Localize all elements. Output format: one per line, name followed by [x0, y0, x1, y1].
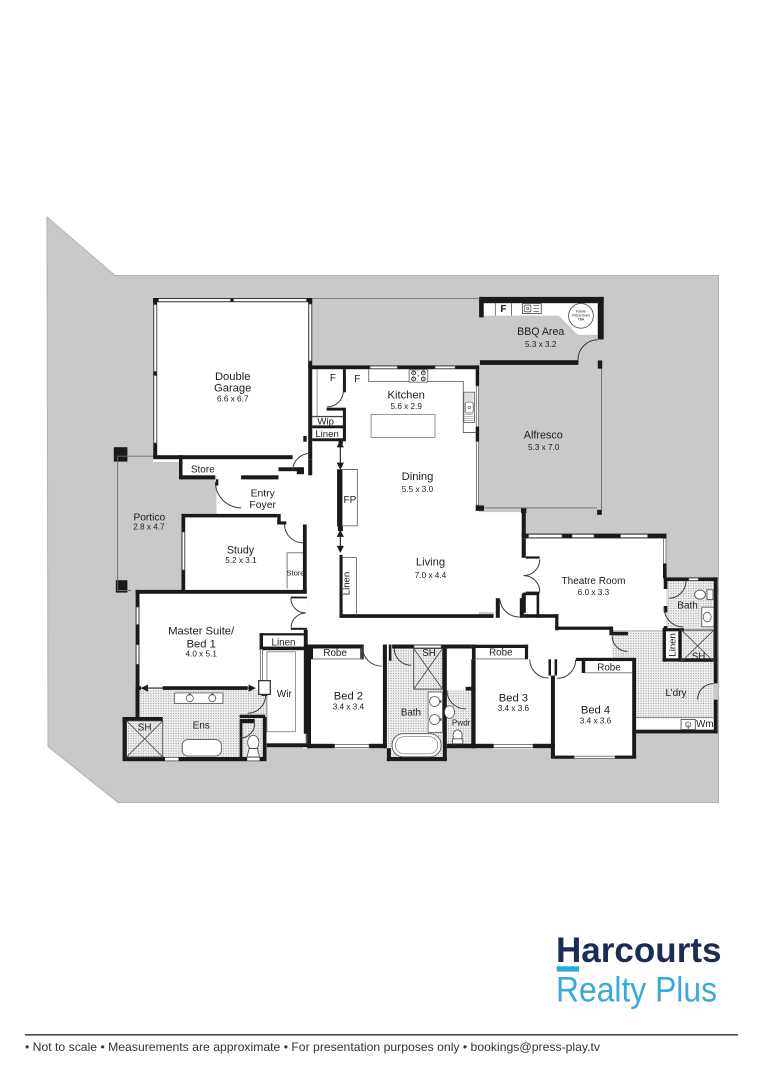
- svg-text:4.0 x 5.1: 4.0 x 5.1: [185, 650, 217, 659]
- svg-text:Bed 2: Bed 2: [334, 691, 363, 703]
- svg-text:SH: SH: [422, 648, 436, 659]
- svg-text:Entry: Entry: [251, 489, 276, 500]
- svg-text:Dining: Dining: [402, 471, 434, 483]
- svg-text:Linen: Linen: [315, 429, 338, 440]
- svg-text:BBQ Area: BBQ Area: [517, 326, 564, 338]
- svg-text:Theatre Room: Theatre Room: [562, 576, 626, 587]
- svg-text:Alfresco: Alfresco: [524, 429, 563, 441]
- svg-text:SH: SH: [692, 651, 706, 662]
- svg-text:F: F: [330, 373, 336, 384]
- svg-text:5.3 x 7.0: 5.3 x 7.0: [528, 443, 560, 452]
- svg-text:Realty Plus: Realty Plus: [556, 971, 717, 1010]
- svg-text:Robe: Robe: [323, 648, 347, 659]
- svg-text:5.3 x 3.2: 5.3 x 3.2: [525, 340, 557, 349]
- svg-text:3.4 x 3.6: 3.4 x 3.6: [498, 704, 530, 713]
- svg-text:FP: FP: [344, 495, 357, 506]
- svg-text:Pwdr: Pwdr: [452, 718, 471, 727]
- svg-text:3.4 x 3.6: 3.4 x 3.6: [580, 717, 612, 726]
- svg-text:Living: Living: [416, 557, 445, 569]
- svg-text:SH: SH: [138, 723, 152, 734]
- svg-text:5.6 x 2.9: 5.6 x 2.9: [390, 402, 422, 411]
- svg-text:Bed 4: Bed 4: [581, 704, 610, 716]
- svg-text:Harcourts: Harcourts: [556, 930, 722, 970]
- svg-text:Robe: Robe: [489, 648, 513, 659]
- svg-text:Store: Store: [191, 464, 215, 475]
- svg-text:3.4 x 3.4: 3.4 x 3.4: [333, 702, 365, 711]
- svg-text:Store: Store: [287, 568, 305, 577]
- svg-text:F: F: [354, 374, 360, 385]
- svg-text:• Not to scale • Measurements: • Not to scale • Measurements are approx…: [25, 1040, 600, 1054]
- svg-text:Wir: Wir: [277, 689, 293, 700]
- svg-text:Wm: Wm: [696, 719, 713, 730]
- svg-text:Bed 1: Bed 1: [187, 639, 216, 651]
- svg-text:5.5 x 3.0: 5.5 x 3.0: [402, 485, 434, 494]
- svg-text:Bath: Bath: [401, 708, 421, 719]
- svg-text:Ens: Ens: [193, 721, 210, 732]
- svg-text:Garage: Garage: [214, 383, 251, 395]
- svg-text:5.2 x 3.1: 5.2 x 3.1: [225, 556, 257, 565]
- svg-text:6.6 x 6.7: 6.6 x 6.7: [217, 395, 249, 404]
- svg-text:Linen: Linen: [667, 633, 678, 656]
- svg-text:6.0 x 3.3: 6.0 x 3.3: [578, 588, 610, 597]
- svg-text:Bath: Bath: [677, 601, 698, 612]
- svg-text:TBA: TBA: [578, 317, 585, 321]
- svg-text:Kitchen: Kitchen: [388, 389, 425, 401]
- svg-text:Master Suite/: Master Suite/: [168, 625, 235, 637]
- svg-text:Study: Study: [227, 545, 255, 557]
- svg-text:F: F: [500, 304, 506, 315]
- svg-text:Foyer: Foyer: [249, 500, 276, 511]
- svg-text:L’dry: L’dry: [665, 688, 686, 699]
- svg-text:7.0 x 4.4: 7.0 x 4.4: [415, 571, 447, 580]
- svg-text:Wip: Wip: [317, 417, 334, 428]
- svg-text:2.8 x 4.7: 2.8 x 4.7: [133, 523, 165, 532]
- svg-text:Linen: Linen: [272, 638, 296, 649]
- svg-text:Double: Double: [215, 371, 250, 383]
- svg-text:Robe: Robe: [597, 663, 621, 674]
- svg-text:Linen: Linen: [342, 572, 353, 595]
- svg-text:Bed 3: Bed 3: [499, 693, 528, 705]
